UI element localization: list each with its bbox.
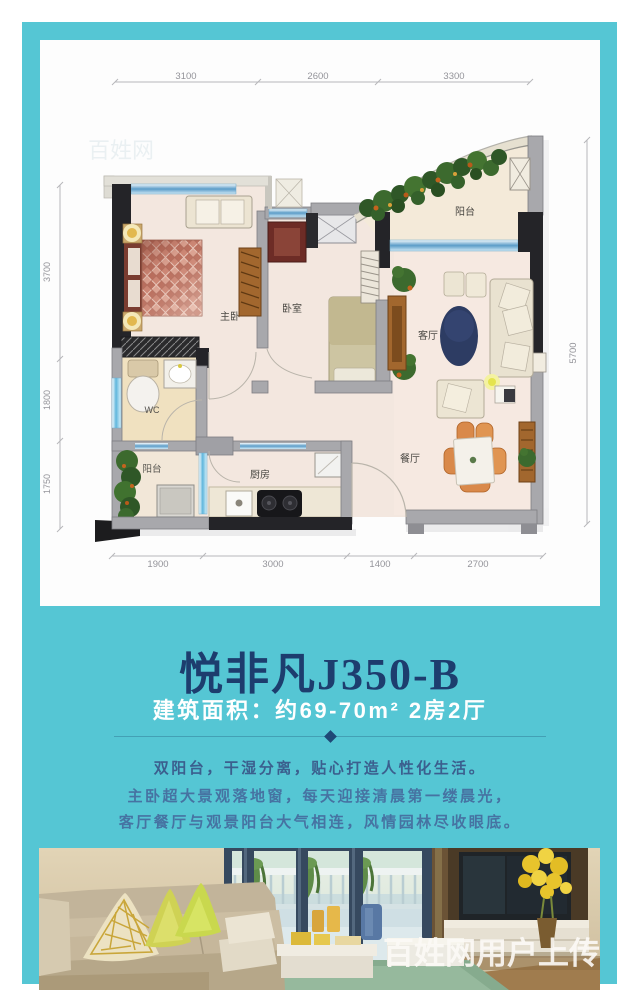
svg-text:5700: 5700 — [568, 342, 579, 363]
svg-text:WC: WC — [145, 405, 160, 415]
svg-text:百姓网: 百姓网 — [88, 138, 154, 163]
svg-text:阳台: 阳台 — [455, 205, 475, 218]
svg-text:卧室: 卧室 — [282, 302, 302, 315]
svg-text:3000: 3000 — [262, 559, 283, 570]
svg-text:2700: 2700 — [467, 559, 488, 570]
svg-text:2600: 2600 — [307, 71, 328, 82]
svg-text:厨房: 厨房 — [250, 468, 270, 481]
svg-text:3100: 3100 — [175, 71, 196, 82]
svg-text:1800: 1800 — [42, 390, 52, 410]
svg-text:餐厅: 餐厅 — [400, 452, 420, 465]
svg-text:3700: 3700 — [42, 262, 52, 282]
svg-text:客厅: 客厅 — [418, 329, 438, 342]
svg-text:1400: 1400 — [369, 559, 390, 570]
svg-text:阳台: 阳台 — [142, 463, 161, 475]
svg-text:1900: 1900 — [147, 559, 168, 570]
svg-text:1750: 1750 — [42, 474, 52, 494]
svg-text:主卧: 主卧 — [220, 310, 240, 323]
svg-text:3300: 3300 — [443, 71, 464, 82]
